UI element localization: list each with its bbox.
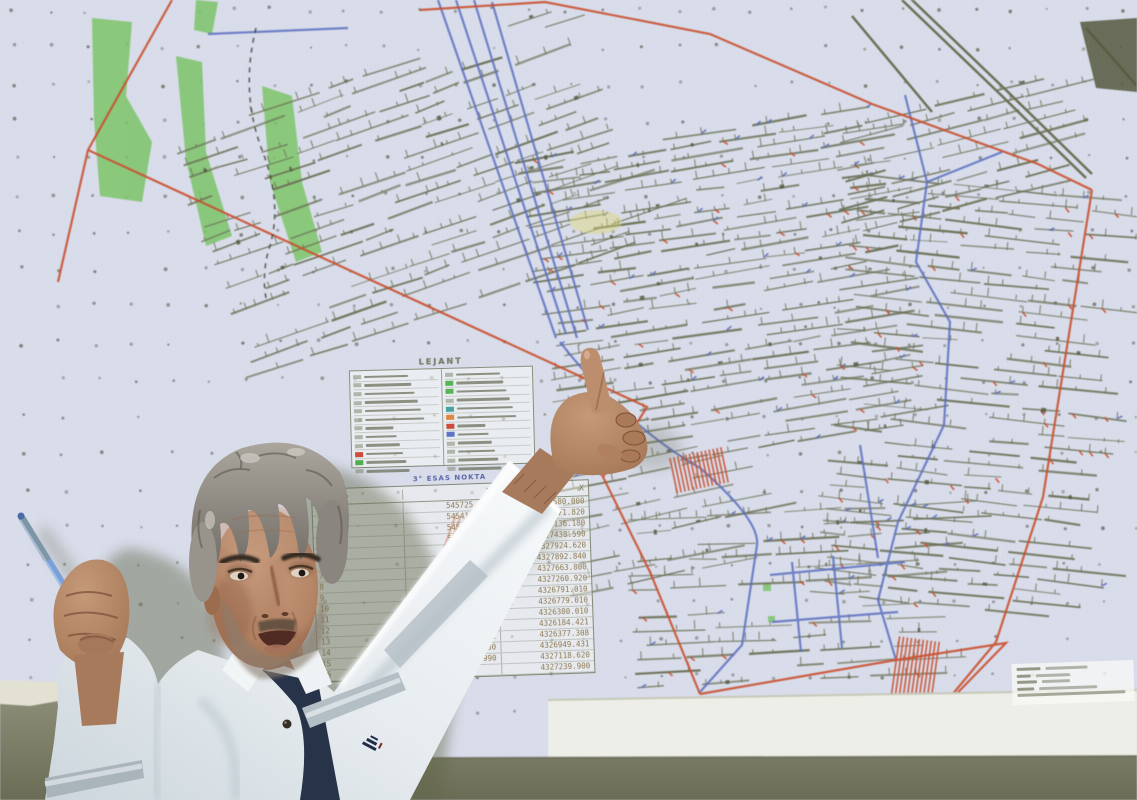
pointing-arm	[502, 348, 648, 514]
fist-wrist	[74, 652, 124, 726]
photo-of-presentation: LEJANT 3° ESAS NOKTA NoktaNo Y X 1545725…	[0, 0, 1137, 800]
coat-button	[283, 720, 292, 729]
presenter	[0, 0, 1137, 800]
hair-side	[316, 500, 348, 584]
fingernail	[584, 351, 590, 360]
